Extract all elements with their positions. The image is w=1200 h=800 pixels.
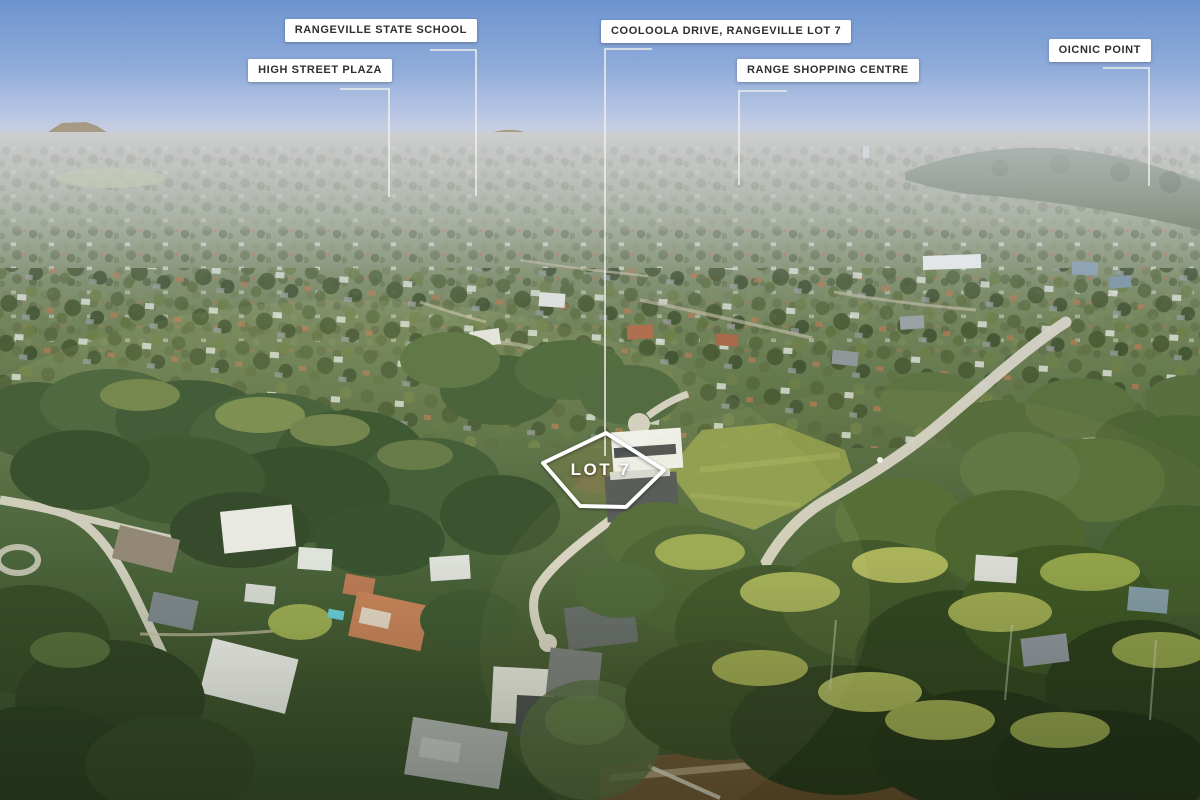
callout-cooloola-drive-lot-7: COOLOOLA DRIVE, RANGEVILLE LOT 7	[601, 20, 851, 43]
callout-high-street-plaza: HIGH STREET PLAZA	[248, 59, 392, 82]
callout-rangeville-state-school: RANGEVILLE STATE SCHOOL	[285, 19, 477, 42]
callout-range-shopping-centre: RANGE SHOPPING CENTRE	[737, 59, 919, 82]
lot-label: LOT 7	[553, 460, 649, 480]
aerial-photo	[0, 0, 1200, 800]
callout-oicnic-point: OICNIC POINT	[1049, 39, 1151, 62]
aerial-photo-stage: RANGEVILLE STATE SCHOOL HIGH STREET PLAZ…	[0, 0, 1200, 800]
sky	[0, 0, 1200, 150]
